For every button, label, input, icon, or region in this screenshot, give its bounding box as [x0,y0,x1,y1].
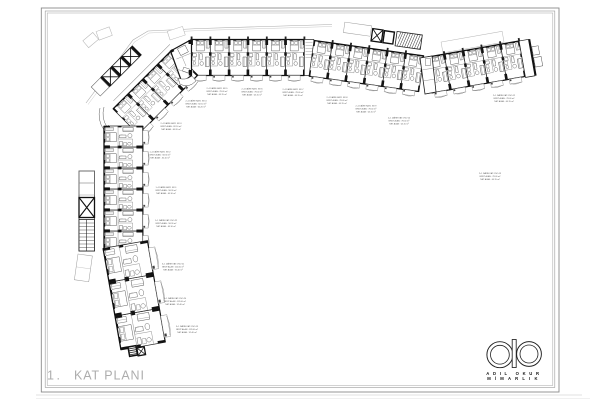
svg-text:NET ALAN : 64.15 m²: NET ALAN : 64.15 m² [494,100,514,103]
svg-text:2+1 DAİRE KAT:1 NO:8: 2+1 DAİRE KAT:1 NO:8 [326,96,348,99]
svg-text:2+1 DAİRE KAT:1 NO:4: 2+1 DAİRE KAT:1 NO:4 [185,100,207,103]
svg-text:BRÜT ALAN : 82.10 m²: BRÜT ALAN : 82.10 m² [186,103,207,106]
svg-text:2+1 DAİRE KAT:1 NO:9: 2+1 DAİRE KAT:1 NO:9 [355,105,377,108]
svg-text:2+1 DAİRE KAT:1 NO:3: 2+1 DAİRE KAT:1 NO:3 [160,122,182,125]
svg-text:NET ALAN : 64.15 m²: NET ALAN : 64.15 m² [283,94,303,97]
svg-text:BRÜT ALAN : 82.10 m²: BRÜT ALAN : 82.10 m² [161,125,182,128]
svg-text:BRÜT ALAN : 58.30 m²: BRÜT ALAN : 58.30 m² [150,154,171,157]
svg-text:BRÜT ALAN : 78.40 m²: BRÜT ALAN : 78.40 m² [389,120,410,123]
svg-text:BRÜT ALAN : 78.40 m²: BRÜT ALAN : 78.40 m² [283,91,304,94]
svg-text:NET ALAN : 92.40 m²: NET ALAN : 92.40 m² [163,269,183,272]
svg-text:2+1 DAİRE KAT:1 NO:12: 2+1 DAİRE KAT:1 NO:12 [493,94,516,97]
svg-text:NET ALAN : 64.15 m²: NET ALAN : 64.15 m² [207,93,227,96]
svg-text:NET ALAN : 66.20 m²: NET ALAN : 66.20 m² [161,128,181,131]
svg-text:BRÜT ALAN : 78.40 m²: BRÜT ALAN : 78.40 m² [480,175,501,178]
svg-text:NET ALAN : 46.10 m²: NET ALAN : 46.10 m² [156,225,176,228]
svg-text:NET ALAN : 64.15 m²: NET ALAN : 64.15 m² [389,123,409,126]
svg-text:BRÜT ALAN : 78.40 m²: BRÜT ALAN : 78.40 m² [356,108,377,111]
svg-text:BRÜT ALAN : 112.60 m²: BRÜT ALAN : 112.60 m² [162,266,184,269]
svg-text:BRÜT ALAN : 78.40 m²: BRÜT ALAN : 78.40 m² [242,91,263,94]
svg-text:2+1 DAİRE KAT:1 NO:13: 2+1 DAİRE KAT:1 NO:13 [479,172,502,175]
svg-text:BRÜT ALAN : 58.30 m²: BRÜT ALAN : 58.30 m² [156,189,177,192]
svg-text:NET ALAN : 64.15 m²: NET ALAN : 64.15 m² [356,111,376,114]
svg-text:NET ALAN : 66.20 m²: NET ALAN : 66.20 m² [186,106,206,109]
svg-text:KAT PLANI: KAT PLANI [74,369,145,383]
svg-text:MİMARLIK: MİMARLIK [487,376,542,381]
svg-text:BRÜT ALAN : 58.30 m²: BRÜT ALAN : 58.30 m² [156,222,177,225]
svg-text:BRÜT ALAN : 112.60 m²: BRÜT ALAN : 112.60 m² [176,328,198,331]
svg-text:NET ALAN : 64.15 m²: NET ALAN : 64.15 m² [327,102,347,105]
svg-text:1+1 DAİRE KAT:1 NO:2: 1+1 DAİRE KAT:1 NO:2 [149,151,171,154]
svg-text:3+1 DAİRE KAT:1 NO:20: 3+1 DAİRE KAT:1 NO:20 [164,297,187,300]
svg-text:2+1 DAİRE KAT:1 NO:5: 2+1 DAİRE KAT:1 NO:5 [206,87,228,90]
svg-text:1.: 1. [47,369,62,383]
svg-text:2+1 DAİRE KAT:1 NO:7: 2+1 DAİRE KAT:1 NO:7 [282,88,304,91]
svg-text:1+1 DAİRE KAT:1 NO:22: 1+1 DAİRE KAT:1 NO:22 [155,219,178,222]
svg-text:BRÜT ALAN : 78.40 m²: BRÜT ALAN : 78.40 m² [327,99,348,102]
svg-text:3+1 DAİRE KAT:1 NO:21: 3+1 DAİRE KAT:1 NO:21 [162,263,185,266]
svg-text:BRÜT ALAN : 78.40 m²: BRÜT ALAN : 78.40 m² [207,90,228,93]
svg-text:3+1 DAİRE KAT:1 NO:19: 3+1 DAİRE KAT:1 NO:19 [176,325,199,328]
svg-text:NET ALAN : 64.15 m²: NET ALAN : 64.15 m² [480,178,500,181]
svg-text:BRÜT ALAN : 112.60 m²: BRÜT ALAN : 112.60 m² [164,300,186,303]
svg-text:2+1 DAİRE KAT:1 NO:10: 2+1 DAİRE KAT:1 NO:10 [388,117,411,120]
svg-text:NET ALAN : 46.10 m²: NET ALAN : 46.10 m² [156,192,176,195]
svg-text:NET ALAN : 92.40 m²: NET ALAN : 92.40 m² [165,303,185,306]
svg-text:BRÜT ALAN : 78.40 m²: BRÜT ALAN : 78.40 m² [494,97,515,100]
svg-text:2+1 DAİRE KAT:1 NO:6: 2+1 DAİRE KAT:1 NO:6 [241,88,263,91]
svg-text:NET ALAN : 64.15 m²: NET ALAN : 64.15 m² [242,94,262,97]
svg-text:NET ALAN : 46.10 m²: NET ALAN : 46.10 m² [150,157,170,160]
svg-text:NET ALAN : 92.40 m²: NET ALAN : 92.40 m² [177,331,197,334]
svg-text:1+1 DAİRE KAT:1 NO:1: 1+1 DAİRE KAT:1 NO:1 [155,186,177,189]
